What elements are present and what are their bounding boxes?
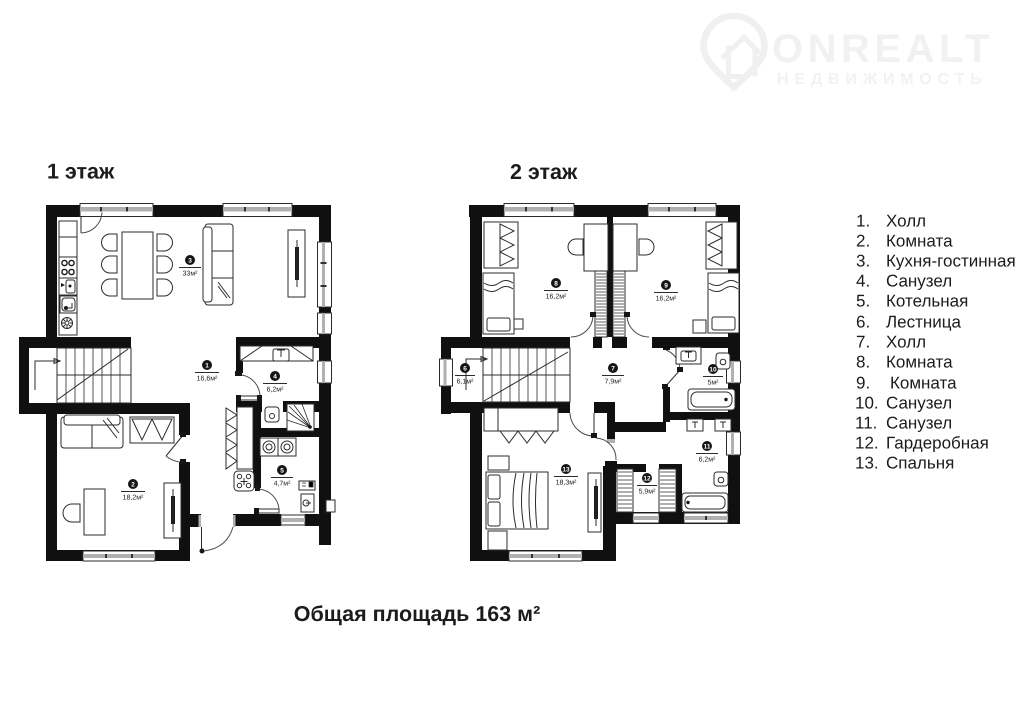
svg-text:Спальня: Спальня	[886, 454, 954, 473]
svg-text:НЕДВИЖИМОСТЬ: НЕДВИЖИМОСТЬ	[777, 71, 987, 88]
svg-text:Санузел: Санузел	[886, 272, 952, 291]
svg-text:11: 11	[704, 444, 711, 451]
svg-text:13.: 13.	[855, 454, 879, 473]
svg-text:Общая площадь 163 м²: Общая площадь 163 м²	[294, 602, 540, 626]
svg-text:33м²: 33м²	[183, 271, 199, 278]
svg-text:1.: 1.	[856, 212, 870, 231]
svg-text:Котельная: Котельная	[886, 292, 968, 311]
svg-text:7,9м²: 7,9м²	[605, 379, 623, 386]
svg-text:10.: 10.	[855, 394, 879, 413]
svg-text:18,2м²: 18,2м²	[123, 495, 144, 502]
svg-text:6,2м²: 6,2м²	[267, 387, 285, 394]
svg-text:16,2м²: 16,2м²	[656, 296, 677, 303]
svg-text:Санузел: Санузел	[886, 414, 952, 433]
svg-text:4.: 4.	[856, 272, 870, 291]
svg-text:3: 3	[188, 258, 192, 265]
svg-text:12.: 12.	[855, 434, 879, 453]
svg-text:5.: 5.	[856, 292, 870, 311]
svg-text:Комната: Комната	[890, 374, 957, 393]
svg-text:18,3м²: 18,3м²	[556, 480, 577, 487]
svg-text:2.: 2.	[856, 232, 870, 251]
svg-text:4,7м²: 4,7м²	[274, 481, 292, 488]
svg-text:6,1м²: 6,1м²	[457, 379, 475, 386]
svg-text:Комната: Комната	[886, 232, 953, 251]
svg-text:Санузел: Санузел	[886, 394, 952, 413]
svg-text:6: 6	[463, 366, 467, 373]
svg-text:7: 7	[611, 366, 615, 373]
svg-text:Комната: Комната	[886, 353, 953, 372]
svg-text:8.: 8.	[856, 353, 870, 372]
svg-text:2 этаж: 2 этаж	[510, 160, 578, 184]
svg-text:12: 12	[643, 476, 651, 483]
svg-text:16,2м²: 16,2м²	[546, 294, 567, 301]
svg-text:6.: 6.	[856, 313, 870, 332]
svg-text:ONREALT: ONREALT	[772, 27, 994, 71]
svg-text:5: 5	[280, 468, 284, 475]
svg-text:Холл: Холл	[886, 333, 926, 352]
svg-text:Гардеробная: Гардеробная	[886, 434, 989, 453]
svg-text:8: 8	[554, 281, 558, 288]
svg-text:13: 13	[562, 467, 570, 474]
svg-text:10: 10	[709, 367, 717, 374]
svg-text:3.: 3.	[856, 252, 870, 271]
svg-text:4: 4	[273, 374, 277, 381]
svg-text:Холл: Холл	[886, 212, 926, 231]
svg-text:7.: 7.	[856, 333, 870, 352]
svg-text:9.: 9.	[856, 374, 870, 393]
svg-text:2: 2	[131, 482, 135, 489]
svg-text:11.: 11.	[855, 414, 877, 433]
svg-text:16,6м²: 16,6м²	[197, 376, 218, 383]
svg-text:1 этаж: 1 этаж	[47, 160, 115, 184]
svg-text:6,2м²: 6,2м²	[699, 457, 717, 464]
svg-text:9: 9	[664, 283, 668, 290]
svg-text:5,9м²: 5,9м²	[639, 489, 657, 496]
svg-text:Кухня-гостинная: Кухня-гостинная	[886, 252, 1016, 271]
svg-text:5м²: 5м²	[707, 380, 719, 387]
svg-text:1: 1	[205, 363, 209, 370]
svg-text:Лестница: Лестница	[886, 313, 962, 332]
